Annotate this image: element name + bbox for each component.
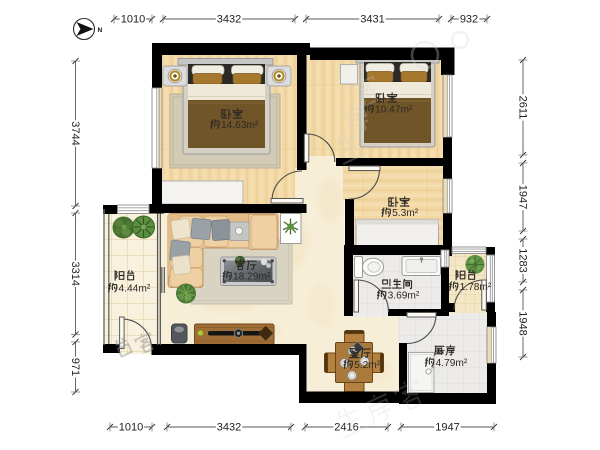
- svg-text:1947: 1947: [516, 185, 528, 209]
- svg-text:3744: 3744: [69, 121, 81, 145]
- svg-text:10.47m²: 10.47m²: [375, 105, 413, 116]
- svg-text:1948: 1948: [516, 311, 528, 335]
- svg-text:971: 971: [69, 358, 81, 376]
- svg-text:3.69m²: 3.69m²: [388, 291, 420, 302]
- svg-text:3432: 3432: [217, 422, 241, 434]
- svg-text:1947: 1947: [435, 422, 459, 434]
- svg-text:5.3m²: 5.3m²: [392, 208, 419, 219]
- svg-text:4.44m²: 4.44m²: [119, 284, 151, 295]
- svg-text:3314: 3314: [69, 262, 81, 286]
- svg-text:4.79m²: 4.79m²: [436, 358, 468, 369]
- svg-text:2611: 2611: [516, 96, 528, 120]
- svg-text:5.2m²: 5.2m²: [354, 360, 381, 371]
- svg-text:18.29m²: 18.29m²: [233, 272, 271, 283]
- svg-text:1010: 1010: [119, 422, 143, 434]
- svg-text:3431: 3431: [360, 14, 384, 26]
- svg-text:932: 932: [460, 14, 478, 26]
- svg-text:N: N: [98, 27, 103, 34]
- svg-text:1010: 1010: [121, 14, 145, 26]
- svg-text:14.63m²: 14.63m²: [221, 120, 259, 131]
- svg-text:1.78m²: 1.78m²: [460, 282, 492, 293]
- svg-text:1283: 1283: [516, 248, 528, 272]
- svg-text:3432: 3432: [217, 14, 241, 26]
